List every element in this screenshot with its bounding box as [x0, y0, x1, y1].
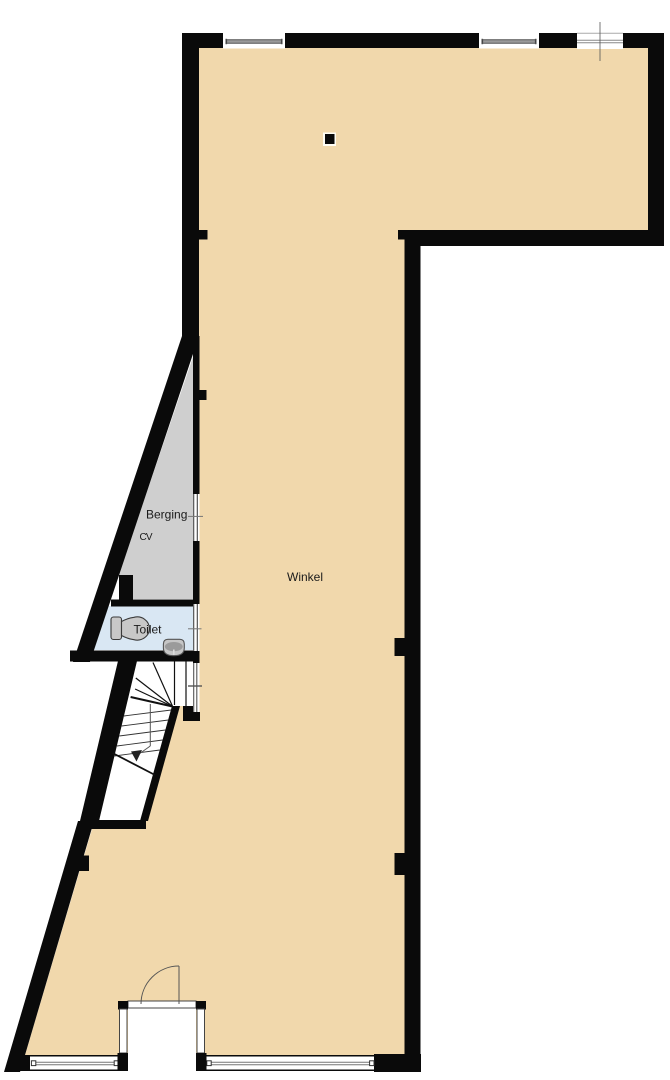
svg-text:CV: CV: [140, 532, 153, 543]
svg-text:Toilet: Toilet: [134, 623, 163, 637]
svg-text:Winkel: Winkel: [287, 570, 323, 584]
svg-text:Berging: Berging: [146, 508, 187, 522]
